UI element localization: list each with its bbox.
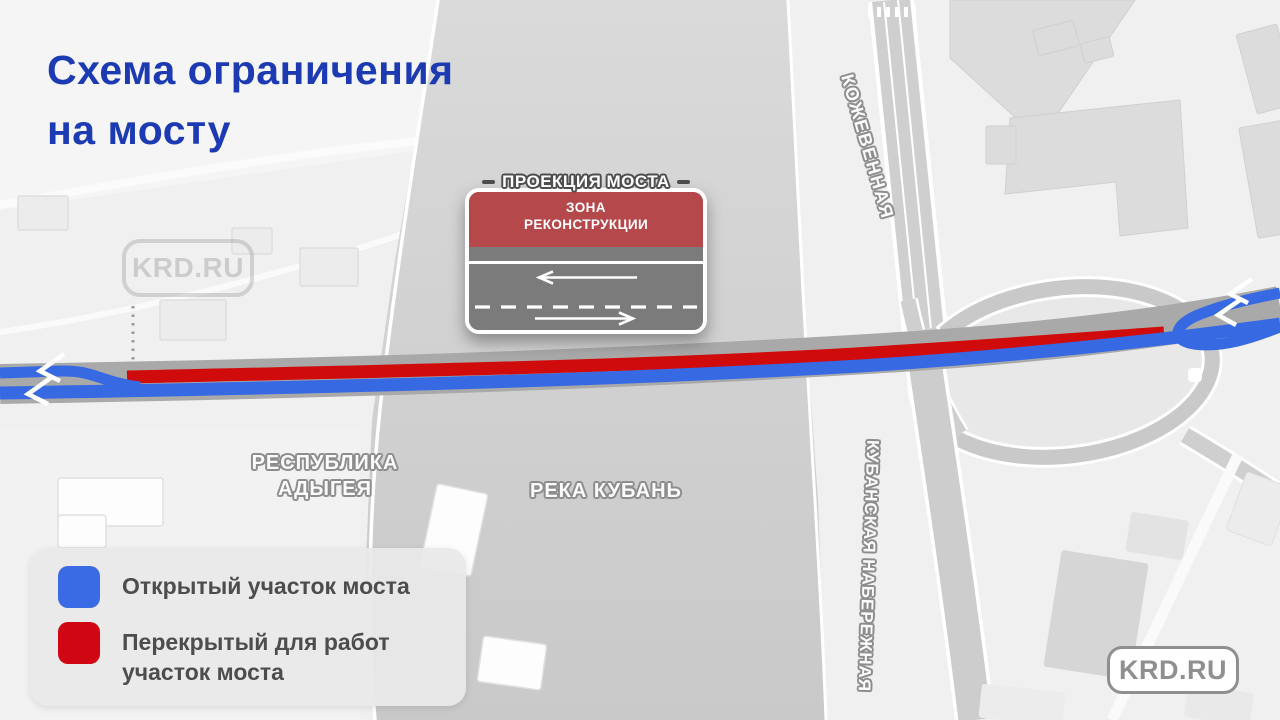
map-marker-square — [1188, 368, 1202, 382]
bridge-projection-callout: ПРОЕКЦИЯ МОСТА ЗОНА РЕКОНСТРУКЦИИ — [452, 172, 720, 334]
reconstruction-zone-band: ЗОНА РЕКОНСТРУКЦИИ — [469, 192, 703, 247]
krd-badge-text: KRD.RU — [1119, 655, 1227, 686]
closed-section-swatch — [58, 622, 100, 664]
krd-badge: KRD.RU — [1107, 646, 1239, 694]
callout-tick-left — [482, 180, 495, 184]
legend-item-closed: Перекрытый для работ участок моста — [58, 622, 452, 687]
legend-item-open: Открытый участок моста — [58, 566, 410, 608]
open-section-label: Открытый участок моста — [122, 566, 410, 601]
callout-box: ЗОНА РЕКОНСТРУКЦИИ — [465, 188, 707, 334]
right-arrow-icon — [531, 310, 641, 332]
legend-panel: Открытый участок моста Перекрытый для ра… — [30, 548, 466, 706]
closed-section-label: Перекрытый для работ участок моста — [122, 622, 452, 687]
krd-watermark-text: KRD.RU — [132, 252, 244, 284]
callout-tick-right — [677, 180, 690, 184]
region-label-adygea: РЕСПУБЛИКА АДЫГЕЯ — [210, 450, 440, 502]
page-title-line1: Схема ограничения — [47, 40, 454, 100]
page-title: Схема ограничения на мосту — [47, 40, 454, 160]
infographic: Схема ограничения на мосту КОЖЕВЕННАЯ КУ… — [0, 0, 1280, 720]
lanes-band — [469, 247, 703, 334]
zone-label-line1: ЗОНА — [469, 199, 703, 216]
page-title-line2: на мосту — [47, 100, 454, 160]
callout-title: ПРОЕКЦИЯ МОСТА — [502, 172, 670, 192]
lane-solid-line — [469, 261, 703, 264]
left-arrow-icon — [531, 269, 641, 291]
callout-title-row: ПРОЕКЦИЯ МОСТА — [452, 172, 720, 192]
open-section-swatch — [58, 566, 100, 608]
krd-watermark: KRD.RU — [122, 239, 254, 297]
zone-label-line2: РЕКОНСТРУКЦИИ — [469, 216, 703, 233]
river-label-kuban: РЕКА КУБАНЬ — [530, 480, 682, 503]
